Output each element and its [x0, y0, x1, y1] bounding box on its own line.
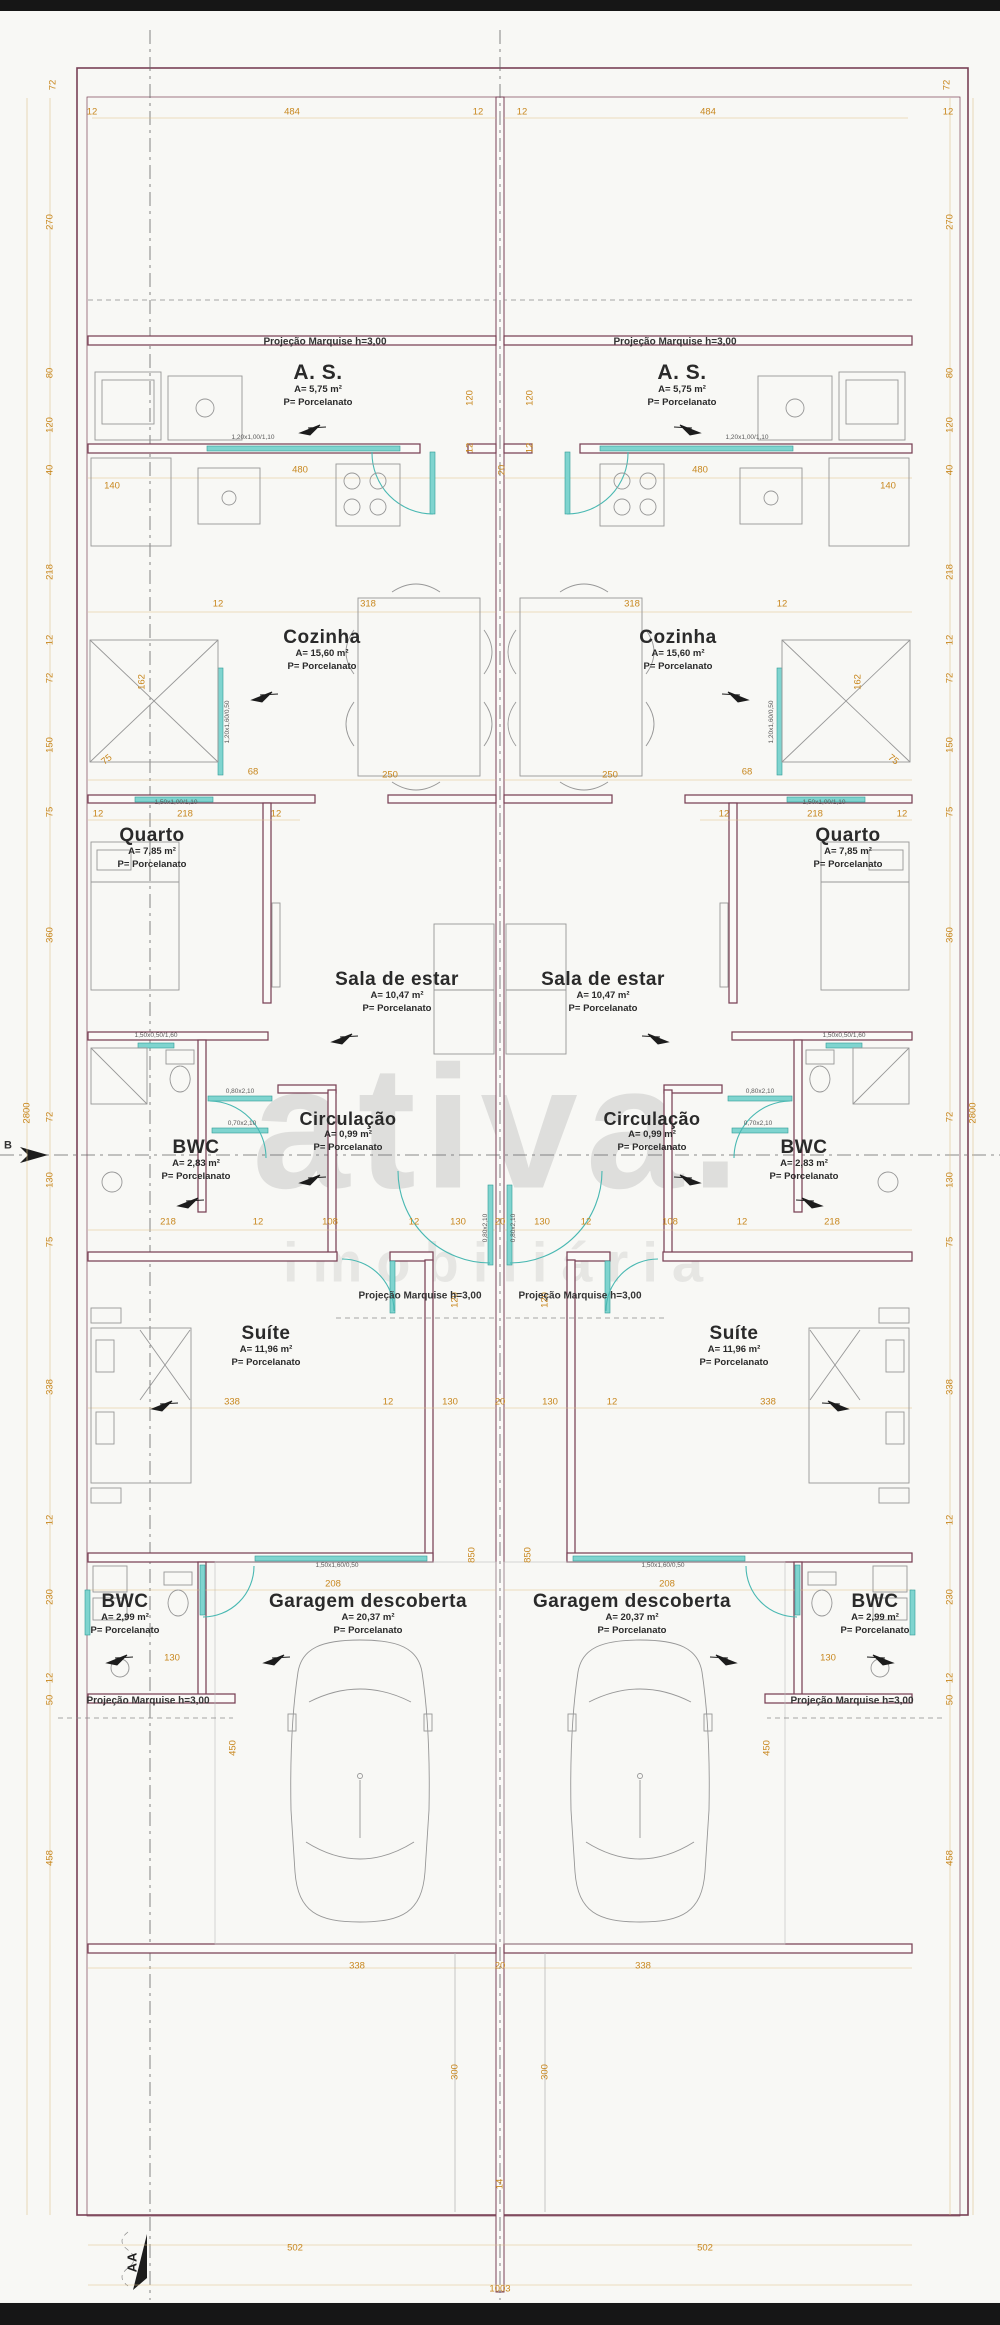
dimension-label: 130: [442, 1397, 458, 1407]
room-name: Cozinha: [639, 628, 716, 648]
dimension-label: 50: [945, 1695, 955, 1706]
room-name: A. S.: [648, 362, 717, 384]
room-label: CirculaçãoA= 0,99 m²P= Porcelanato: [603, 1110, 700, 1155]
room-label: QuartoA= 7,85 m²P= Porcelanato: [814, 826, 883, 872]
marquise-projection-label: Projeção Marquise h=3,00: [518, 1291, 641, 1302]
dimension-label: 338: [945, 1379, 955, 1395]
dimension-label: 300: [540, 2064, 550, 2080]
dimension-label: 338: [224, 1397, 240, 1407]
room-floor-finish: P= Porcelanato: [648, 397, 717, 410]
dimension-label: 12: [525, 443, 535, 454]
dimension-label: 338: [635, 1961, 651, 1971]
dimension-label: 140: [880, 481, 896, 491]
dimension-label: 130: [945, 1172, 955, 1188]
marquise-projection-label: Projeção Marquise h=3,00: [263, 337, 386, 348]
dimension-label: 162: [853, 674, 863, 690]
room-floor-finish: P= Porcelanato: [118, 859, 187, 872]
room-name: BWC: [770, 1138, 839, 1158]
room-area: A= 20,37 m²: [533, 1612, 731, 1625]
room-area: A= 5,75 m²: [648, 384, 717, 397]
annotation-layer: 4844841212121272722708012040218127215075…: [0, 0, 1000, 2325]
opening-size-label: 1,50x1,00/1,10: [154, 800, 197, 807]
room-label: QuartoA= 7,85 m²P= Porcelanato: [118, 826, 187, 872]
dimension-label: 318: [624, 599, 640, 609]
dimension-label: 72: [45, 673, 55, 684]
dimension-label: 14: [495, 2179, 505, 2190]
dimension-label: 218: [45, 564, 55, 580]
opening-size-label: 1,20x1,00/1,10: [725, 435, 768, 442]
room-name: Circulação: [299, 1110, 396, 1129]
dimension-label: 162: [137, 674, 147, 690]
room-area: A= 0,99 m²: [603, 1129, 700, 1142]
dimension-label: 108: [662, 1217, 678, 1227]
dimension-label: 12: [945, 635, 955, 646]
dimension-label: 40: [945, 465, 955, 476]
floorplan-page: ativa. imobiliária 484484121212127272270…: [0, 0, 1000, 2325]
room-label: BWCA= 2,83 m²P= Porcelanato: [162, 1138, 231, 1184]
dimension-label: 130: [164, 1653, 180, 1663]
dimension-label: 318: [360, 599, 376, 609]
dimension-label: 72: [45, 1112, 55, 1123]
dimension-label: 12: [777, 599, 788, 609]
dimension-label: 75: [945, 1237, 955, 1248]
room-label: Sala de estarA= 10,47 m²P= Porcelanato: [541, 970, 665, 1016]
dimension-label: 850: [467, 1547, 477, 1563]
dimension-label: 68: [248, 767, 259, 777]
dimension-label: 338: [760, 1397, 776, 1407]
dimension-label: 12: [943, 107, 954, 117]
room-floor-finish: P= Porcelanato: [770, 1171, 839, 1184]
opening-size-label: 0,80x2,10: [226, 1089, 255, 1096]
room-floor-finish: P= Porcelanato: [269, 1625, 467, 1638]
room-floor-finish: P= Porcelanato: [283, 661, 360, 674]
room-floor-finish: P= Porcelanato: [284, 397, 353, 410]
dimension-label: 230: [945, 1589, 955, 1605]
room-area: A= 7,85 m²: [814, 846, 883, 859]
dimension-label: 12: [465, 443, 475, 454]
top-letterbox-bar: [0, 0, 1000, 11]
dimension-label: 12: [213, 599, 224, 609]
marquise-projection-label: Projeção Marquise h=3,00: [790, 1696, 913, 1707]
dimension-label: 130: [820, 1653, 836, 1663]
dimension-label: 208: [659, 1579, 675, 1589]
dimension-label: 80: [945, 368, 955, 379]
dimension-label: 2800: [968, 1102, 978, 1123]
dimension-label: 484: [700, 107, 716, 117]
room-floor-finish: P= Porcelanato: [91, 1625, 160, 1638]
dimension-label: 75: [100, 753, 114, 767]
room-label: A. S.A= 5,75 m²P= Porcelanato: [284, 362, 353, 410]
room-name: BWC: [162, 1138, 231, 1158]
opening-size-label: 1,20x1,00/1,10: [231, 435, 274, 442]
room-area: A= 15,60 m²: [283, 648, 360, 661]
dimension-label: 130: [45, 1172, 55, 1188]
dimension-label: 20: [497, 465, 507, 476]
room-area: A= 5,75 m²: [284, 384, 353, 397]
dimension-label: 20: [495, 1961, 506, 1971]
marquise-projection-label: Projeção Marquise h=3,00: [358, 1291, 481, 1302]
opening-size-label: 1,50x1,60/0,50: [315, 1563, 358, 1570]
marquise-projection-label: Projeção Marquise h=3,00: [613, 337, 736, 348]
room-area: A= 10,47 m²: [335, 990, 459, 1003]
room-label: A. S.A= 5,75 m²P= Porcelanato: [648, 362, 717, 410]
section-marker-label: AA: [126, 2252, 139, 2273]
room-floor-finish: P= Porcelanato: [814, 859, 883, 872]
room-area: A= 2,83 m²: [770, 1158, 839, 1171]
dimension-label: 850: [523, 1547, 533, 1563]
dimension-label: 150: [945, 737, 955, 753]
dimension-label: 12: [945, 1673, 955, 1684]
dimension-label: 12: [409, 1217, 420, 1227]
room-name: Quarto: [814, 826, 883, 846]
room-area: A= 15,60 m²: [639, 648, 716, 661]
room-floor-finish: P= Porcelanato: [162, 1171, 231, 1184]
dimension-label: 40: [45, 465, 55, 476]
dimension-label: 12: [45, 1515, 55, 1526]
opening-size-label: 1,50x0,50/1,60: [134, 1033, 177, 1040]
dimension-label: 218: [807, 809, 823, 819]
room-label: SuíteA= 11,96 m²P= Porcelanato: [700, 1324, 769, 1370]
dimension-label: 458: [45, 1850, 55, 1866]
room-label: Garagem descobertaA= 20,37 m²P= Porcelan…: [269, 1592, 467, 1638]
opening-size-label: 1,20x1,60/0,50: [225, 700, 232, 743]
dimension-label: 230: [45, 1589, 55, 1605]
room-name: Suíte: [700, 1324, 769, 1344]
bottom-letterbox-bar: [0, 2303, 1000, 2325]
room-area: A= 10,47 m²: [541, 990, 665, 1003]
dimension-label: 338: [349, 1961, 365, 1971]
room-label: CozinhaA= 15,60 m²P= Porcelanato: [283, 628, 360, 674]
dimension-label: 20: [495, 1217, 506, 1227]
room-floor-finish: P= Porcelanato: [335, 1003, 459, 1016]
dimension-label: 12: [383, 1397, 394, 1407]
room-floor-finish: P= Porcelanato: [541, 1003, 665, 1016]
dimension-label: 12: [581, 1217, 592, 1227]
dimension-label: 130: [534, 1217, 550, 1227]
room-floor-finish: P= Porcelanato: [299, 1142, 396, 1155]
room-name: A. S.: [284, 362, 353, 384]
dimension-label: 12: [737, 1217, 748, 1227]
marquise-projection-label: Projeção Marquise h=3,00: [86, 1696, 209, 1707]
dimension-label: 12: [517, 107, 528, 117]
dimension-label: 270: [945, 214, 955, 230]
room-area: A= 0,99 m²: [299, 1129, 396, 1142]
room-area: A= 20,37 m²: [269, 1612, 467, 1625]
dimension-label: 72: [942, 80, 952, 91]
opening-size-label: 1,20x1,60/0,50: [769, 700, 776, 743]
dimension-label: 12: [607, 1397, 618, 1407]
dimension-label: 208: [325, 1579, 341, 1589]
dimension-label: 360: [45, 927, 55, 943]
room-label: CirculaçãoA= 0,99 m²P= Porcelanato: [299, 1110, 396, 1155]
dimension-label: 12: [253, 1217, 264, 1227]
dimension-label: 502: [287, 2243, 303, 2253]
dimension-label: 2800: [22, 1102, 32, 1123]
dimension-label: 72: [945, 673, 955, 684]
dimension-label: 502: [697, 2243, 713, 2253]
room-name: Garagem descoberta: [533, 1592, 731, 1612]
dimension-label: 250: [382, 770, 398, 780]
room-floor-finish: P= Porcelanato: [639, 661, 716, 674]
dimension-label: 12: [271, 809, 282, 819]
opening-size-label: 1,50x1,60/0,50: [641, 1563, 684, 1570]
room-label: BWCA= 2,99 m²P= Porcelanato: [841, 1592, 910, 1638]
room-floor-finish: P= Porcelanato: [232, 1357, 301, 1370]
room-label: BWCA= 2,83 m²P= Porcelanato: [770, 1138, 839, 1184]
dimension-label: 218: [945, 564, 955, 580]
room-name: Garagem descoberta: [269, 1592, 467, 1612]
room-floor-finish: P= Porcelanato: [533, 1625, 731, 1638]
dimension-label: 218: [824, 1217, 840, 1227]
dimension-label: 80: [45, 368, 55, 379]
dimension-label: 108: [322, 1217, 338, 1227]
room-label: CozinhaA= 15,60 m²P= Porcelanato: [639, 628, 716, 674]
dimension-label: 12: [87, 107, 98, 117]
dimension-label: 75: [945, 807, 955, 818]
dimension-label: 12: [897, 809, 908, 819]
dimension-label: 12: [45, 635, 55, 646]
dimension-label: 130: [542, 1397, 558, 1407]
room-name: Sala de estar: [335, 970, 459, 990]
opening-size-label: 0,80x2,10: [483, 1214, 490, 1243]
room-floor-finish: P= Porcelanato: [700, 1357, 769, 1370]
opening-size-label: 0,70x2,10: [228, 1121, 257, 1128]
dimension-label: 250: [602, 770, 618, 780]
room-name: Quarto: [118, 826, 187, 846]
dimension-label: 120: [45, 417, 55, 433]
room-area: A= 2,99 m²: [841, 1612, 910, 1625]
room-area: A= 2,99 m²: [91, 1612, 160, 1625]
dimension-label: 300: [450, 2064, 460, 2080]
dimension-label: 1003: [489, 2284, 510, 2294]
dimension-label: 120: [945, 417, 955, 433]
dimension-label: 218: [160, 1217, 176, 1227]
dimension-label: 50: [45, 1695, 55, 1706]
dimension-label: 270: [45, 214, 55, 230]
dimension-label: 130: [450, 1217, 466, 1227]
room-name: BWC: [91, 1592, 160, 1612]
dimension-label: 450: [762, 1740, 772, 1756]
dimension-label: 218: [177, 809, 193, 819]
room-label: BWCA= 2,99 m²P= Porcelanato: [91, 1592, 160, 1638]
dimension-label: 75: [45, 807, 55, 818]
dimension-label: 12: [473, 107, 484, 117]
dimension-label: 75: [886, 753, 900, 767]
dimension-label: 75: [45, 1237, 55, 1248]
opening-size-label: 0,70x2,10: [744, 1121, 773, 1128]
room-floor-finish: P= Porcelanato: [603, 1142, 700, 1155]
room-area: A= 11,96 m²: [700, 1344, 769, 1357]
dimension-label: 12: [719, 809, 730, 819]
dimension-label: 72: [48, 80, 58, 91]
dimension-label: 12: [93, 809, 104, 819]
dimension-label: 12: [945, 1515, 955, 1526]
dimension-label: 338: [45, 1379, 55, 1395]
dimension-label: 20: [495, 1397, 506, 1407]
room-name: Circulação: [603, 1110, 700, 1129]
room-label: Garagem descobertaA= 20,37 m²P= Porcelan…: [533, 1592, 731, 1638]
opening-size-label: 1,50x0,50/1,60: [822, 1033, 865, 1040]
room-name: Cozinha: [283, 628, 360, 648]
dimension-label: 480: [292, 465, 308, 475]
opening-size-label: 0,80x2,10: [511, 1214, 518, 1243]
room-area: A= 2,83 m²: [162, 1158, 231, 1171]
opening-size-label: 0,80x2,10: [746, 1089, 775, 1096]
dimension-label: 150: [45, 737, 55, 753]
room-label: Sala de estarA= 10,47 m²P= Porcelanato: [335, 970, 459, 1016]
room-area: A= 11,96 m²: [232, 1344, 301, 1357]
room-label: SuíteA= 11,96 m²P= Porcelanato: [232, 1324, 301, 1370]
dimension-label: 450: [228, 1740, 238, 1756]
dimension-label: 72: [945, 1112, 955, 1123]
room-area: A= 7,85 m²: [118, 846, 187, 859]
dimension-label: 68: [742, 767, 753, 777]
dimension-label: 458: [945, 1850, 955, 1866]
dimension-label: 120: [465, 390, 475, 406]
room-name: Sala de estar: [541, 970, 665, 990]
room-name: BWC: [841, 1592, 910, 1612]
section-marker-label: B: [4, 1141, 12, 1152]
dimension-label: 484: [284, 107, 300, 117]
dimension-label: 480: [692, 465, 708, 475]
room-floor-finish: P= Porcelanato: [841, 1625, 910, 1638]
dimension-label: 12: [45, 1673, 55, 1684]
room-name: Suíte: [232, 1324, 301, 1344]
opening-size-label: 1,50x1,00/1,10: [802, 800, 845, 807]
dimension-label: 140: [104, 481, 120, 491]
dimension-label: 360: [945, 927, 955, 943]
dimension-label: 120: [525, 390, 535, 406]
